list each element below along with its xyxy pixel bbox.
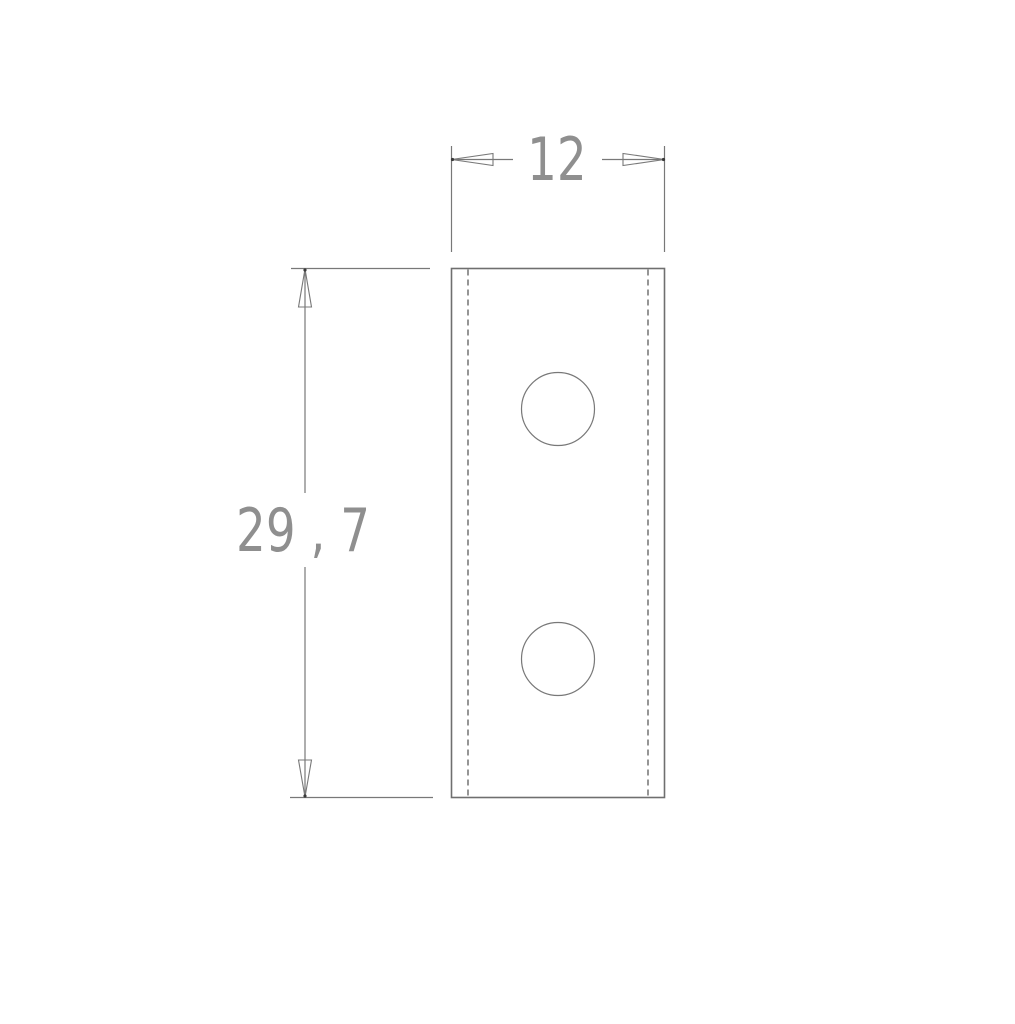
width-dimension-text: 12	[527, 124, 587, 194]
height-arrow-up-tip	[303, 268, 306, 271]
technical-drawing: 12 29 , 7	[0, 0, 1015, 1024]
hole-top	[522, 373, 595, 446]
width-arrow-left-tip	[451, 158, 454, 161]
height-dimension: 29 , 7	[236, 268, 433, 797]
hole-bottom	[522, 623, 595, 696]
width-arrow-right-tip	[662, 158, 665, 161]
drawing-canvas: 12 29 , 7	[0, 0, 1015, 1024]
part-outline	[452, 269, 665, 798]
height-dimension-text: 29 , 7	[236, 495, 370, 565]
width-dimension: 12	[451, 124, 665, 252]
height-arrow-down-tip	[303, 794, 306, 797]
part-view	[452, 269, 665, 798]
